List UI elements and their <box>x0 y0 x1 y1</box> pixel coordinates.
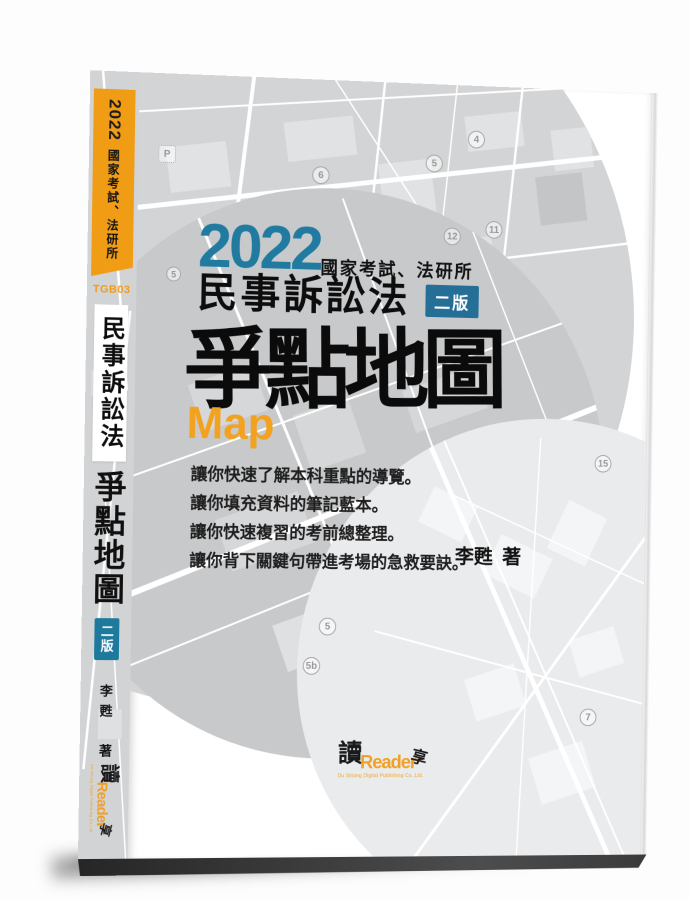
publisher-logo-char: 讀 <box>338 742 362 767</box>
spine-subject-strip: 民事訴訟法 <box>92 304 128 461</box>
spine-orange-block: 2022 國家考試、法研所 <box>91 88 136 277</box>
book: 2022 國家考試、法研所 TGB03 民事訴訟法 爭點地圖 二版 李甦 著 讀 <box>78 70 658 859</box>
spine-title: 爭點地圖 <box>84 470 132 606</box>
spine-publisher-logo: 讀 Reader 享 Du Shiang Digital Publishing … <box>88 764 119 838</box>
cover-edition-badge: 二版 <box>425 285 479 319</box>
publisher-logo-text: Reader <box>360 754 416 773</box>
map-marker-5b-left: 5 <box>166 266 181 281</box>
selling-point: 讓你快速了解本科重點的導覽。 <box>190 460 469 493</box>
spine-year: 2022 <box>104 99 124 141</box>
cover-subject: 民事訴訟法 <box>197 272 410 318</box>
spine-edition-badge: 二版 <box>94 618 119 660</box>
selling-point: 讓你背下關鍵句帶進考場的急救要訣。 <box>189 546 468 577</box>
publisher-tagline: Du Shiang Digital Publishing Co.,Ltd. <box>338 773 424 779</box>
cover-selling-points: 讓你快速了解本科重點的導覽。 讓你填充資料的筆記藍本。 讓你快速複習的考前總整理… <box>189 460 469 578</box>
spine-book-code: TGB03 <box>93 283 131 296</box>
cover-publisher-logo: 讀 Reader 享 Du Shiang Digital Publishing … <box>338 742 430 779</box>
map-marker-p: P <box>158 145 176 164</box>
map-marker-5: 5 <box>426 154 443 172</box>
cover-author: 李甦 著 <box>455 540 522 569</box>
cover-title-latin: Map <box>186 400 275 446</box>
selling-point: 讓你填充資料的筆記藍本。 <box>190 489 469 521</box>
map-marker-11: 11 <box>485 221 502 239</box>
publisher-logo-char: 讀 <box>99 764 119 784</box>
spine-subject: 民事訴訟法 <box>92 315 129 450</box>
publisher-logo-text: Reader <box>94 782 109 828</box>
book-product-photo: 2022 國家考試、法研所 TGB03 民事訴訟法 爭點地圖 二版 李甦 著 讀 <box>0 0 689 900</box>
book-3d-scene: 2022 國家考試、法研所 TGB03 民事訴訟法 爭點地圖 二版 李甦 著 讀 <box>78 70 658 876</box>
book-front-cover: P 5 6 4 12 11 5 5 5b 15 7 2022 國家考試、法研所 … <box>128 72 652 858</box>
spine-exam-label: 國家考試、法研所 <box>104 149 123 261</box>
selling-point: 讓你快速複習的考前總整理。 <box>190 517 469 549</box>
publisher-logo-char2: 享 <box>410 748 430 768</box>
map-marker-4: 4 <box>468 131 485 149</box>
publisher-logo-char2: 享 <box>97 822 113 838</box>
spine-author: 李甦 著 <box>95 684 115 764</box>
